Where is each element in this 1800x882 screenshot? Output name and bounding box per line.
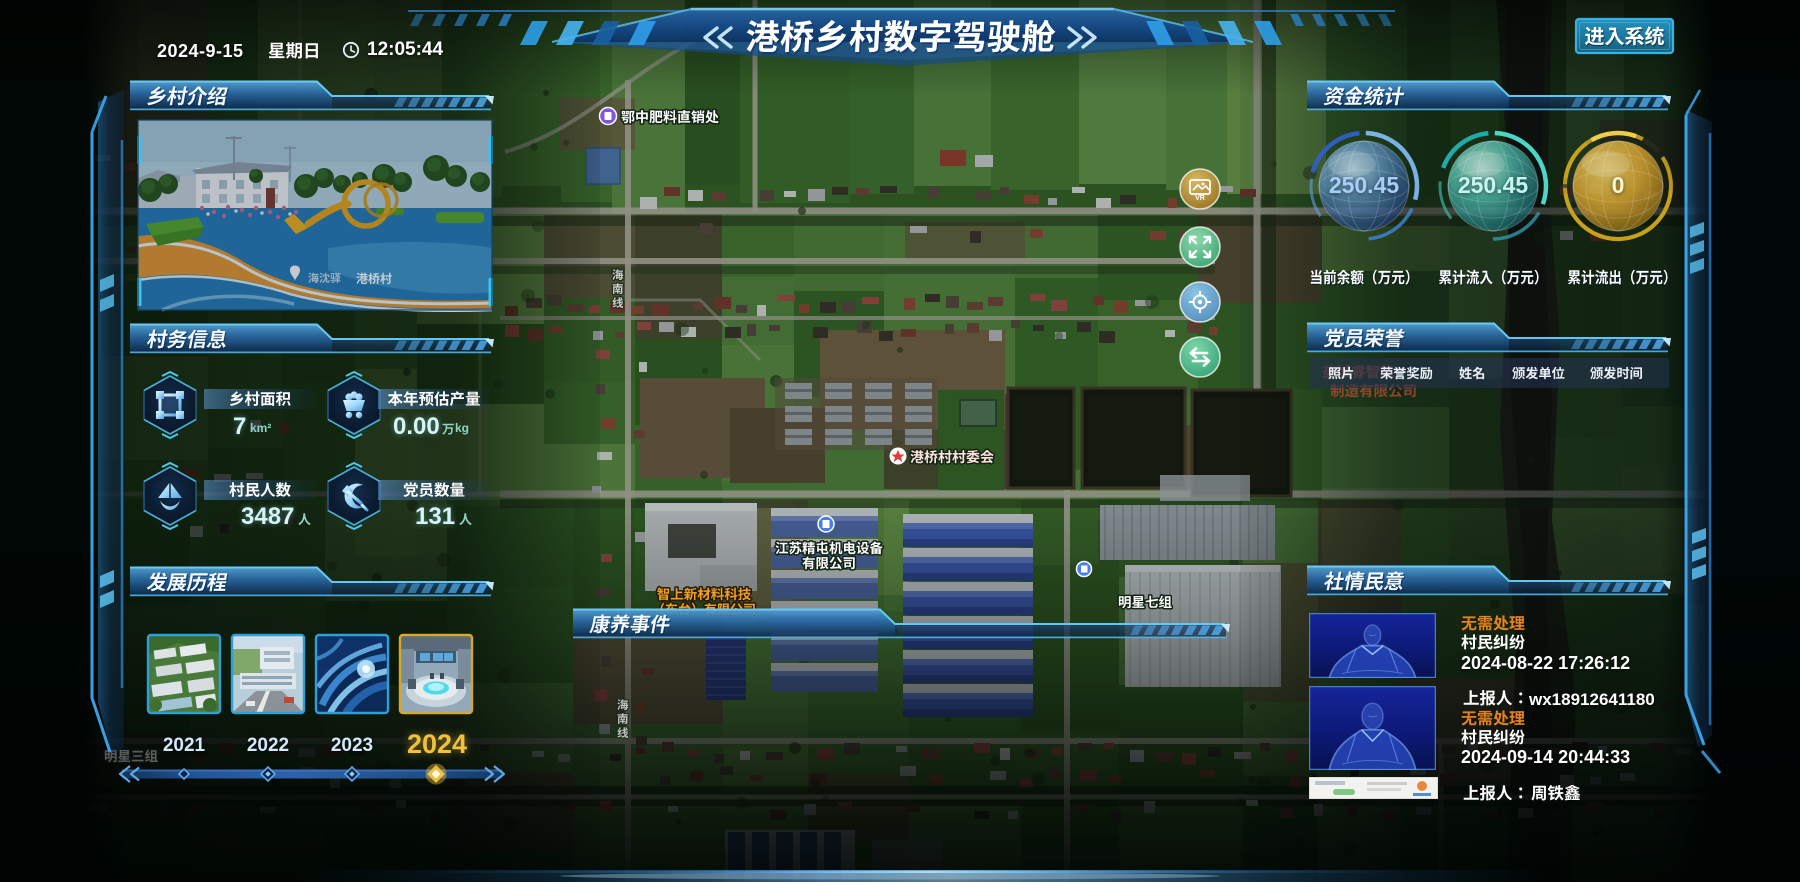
svg-text:VR: VR [1195, 195, 1205, 202]
